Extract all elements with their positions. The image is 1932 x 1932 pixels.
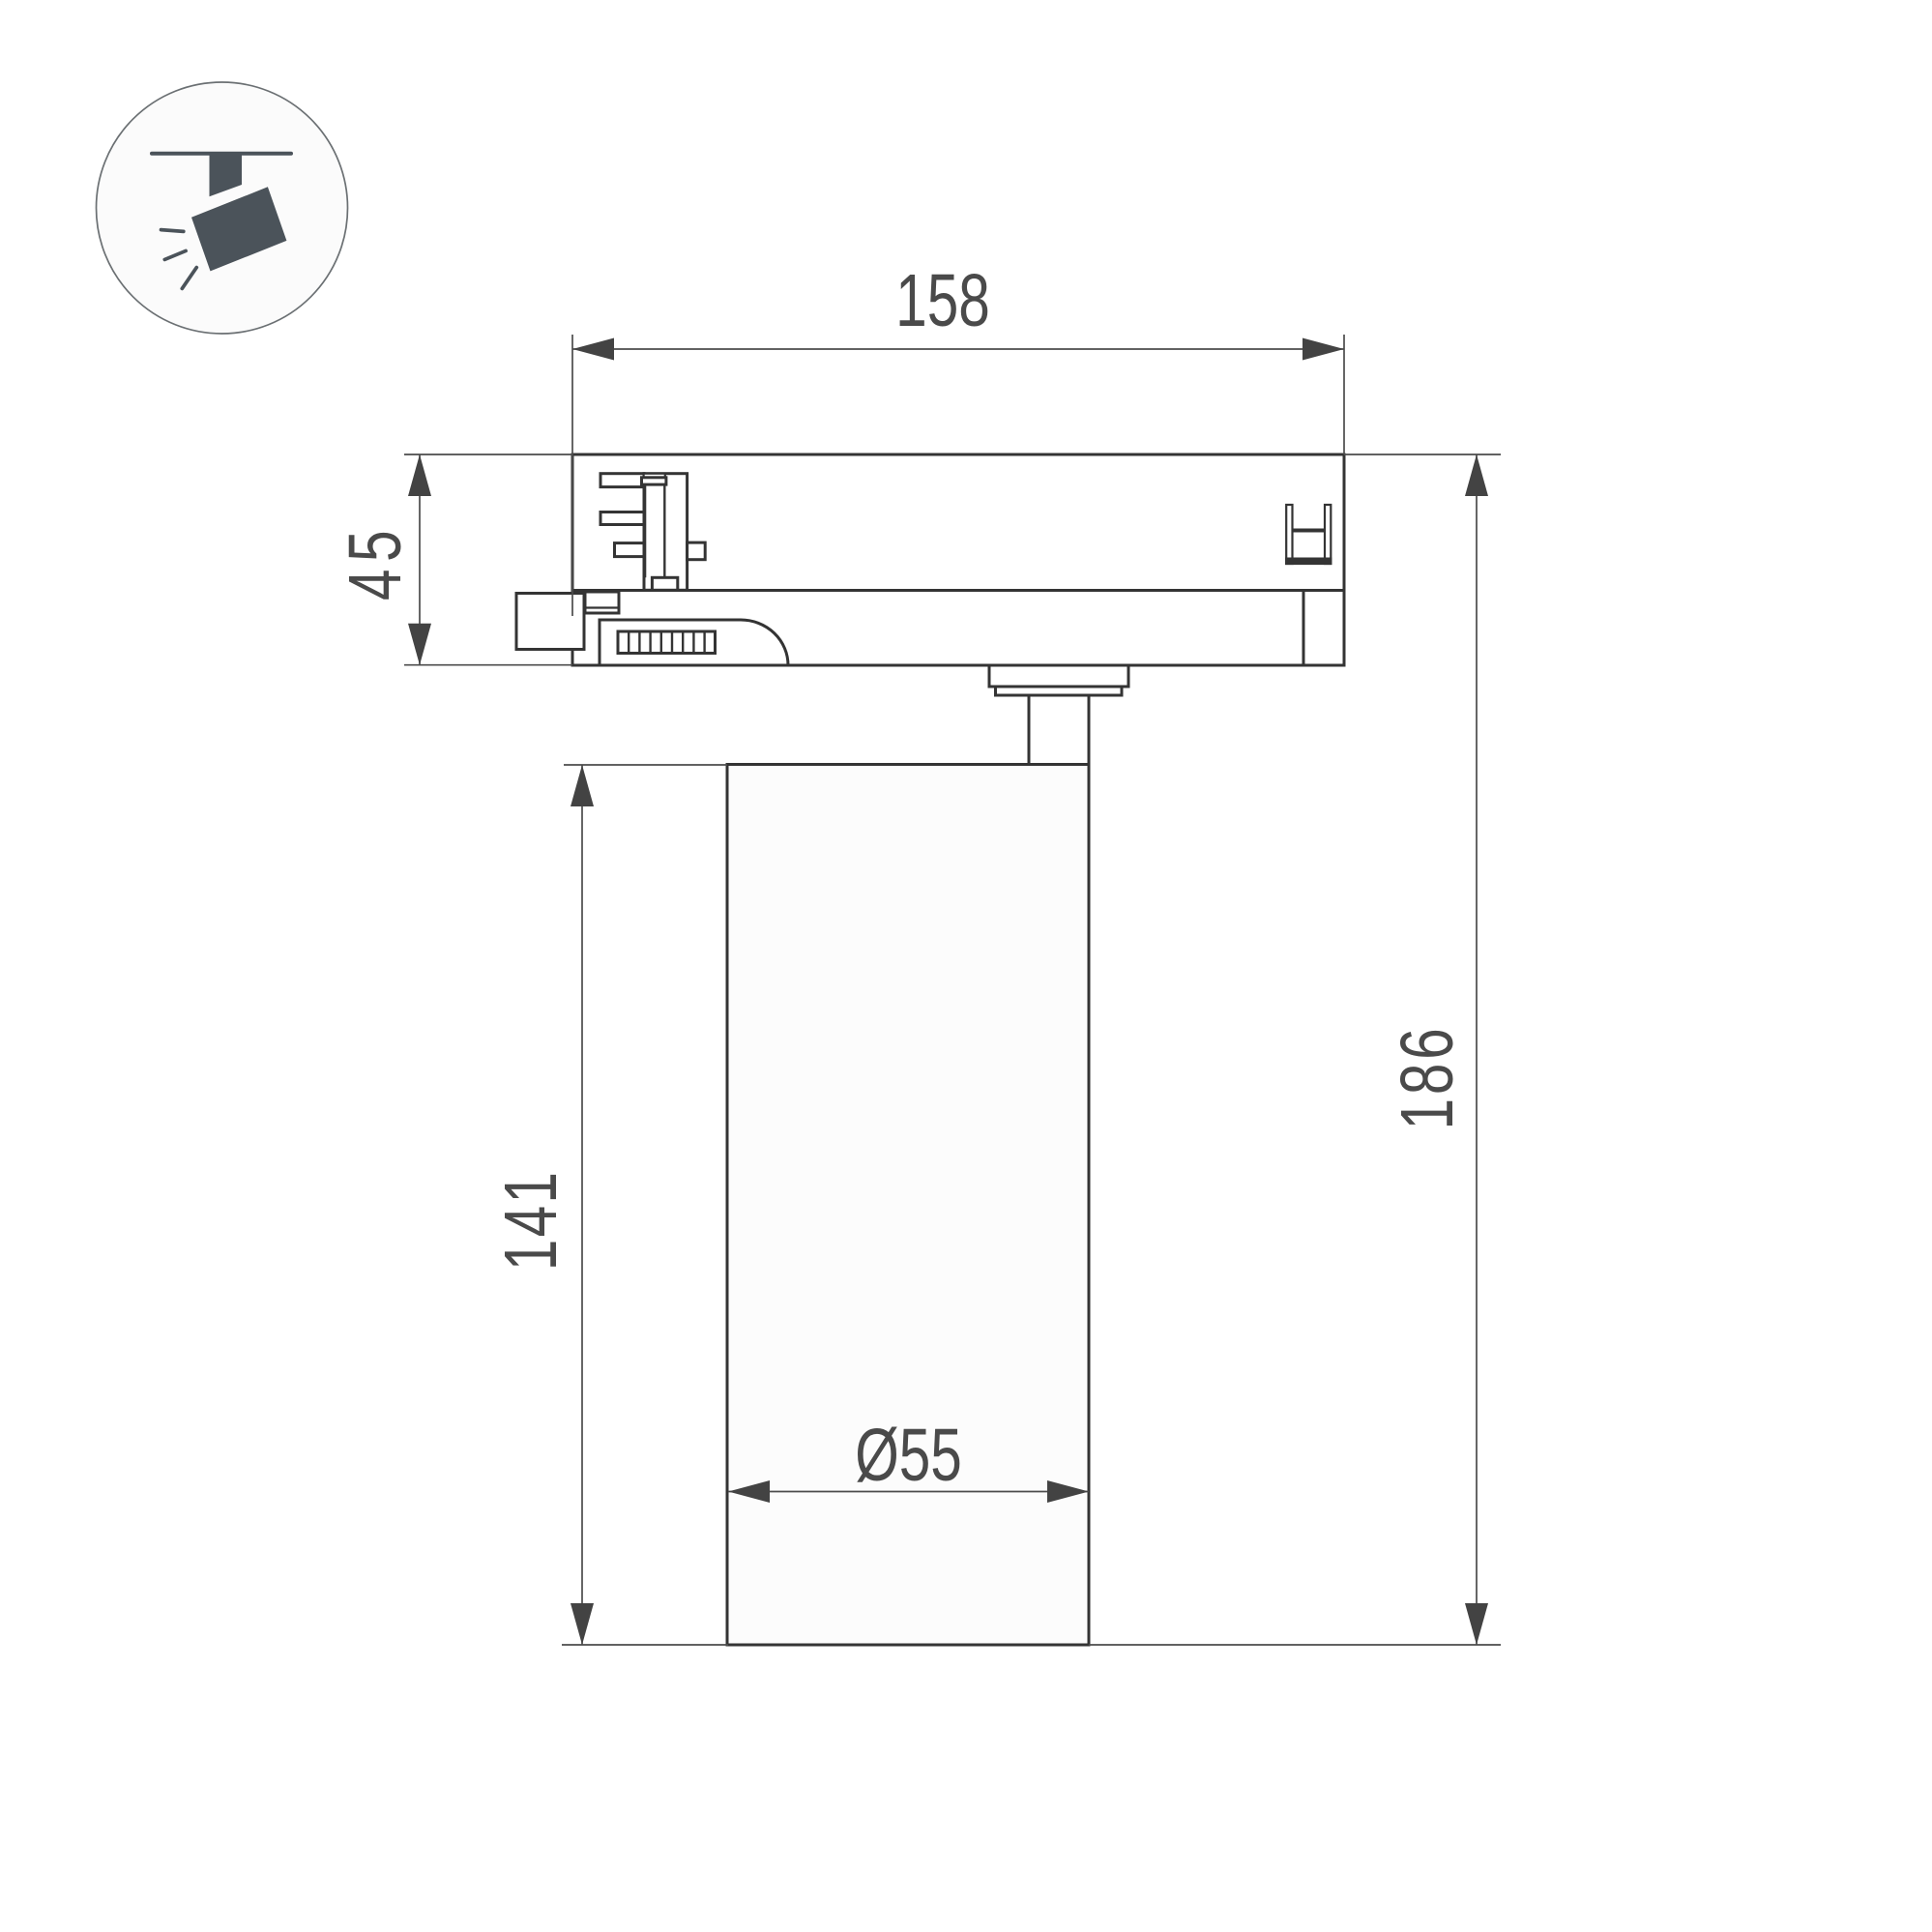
svg-text:186: 186 (1386, 1024, 1469, 1129)
svg-text:45: 45 (334, 523, 417, 600)
svg-text:Ø55: Ø55 (855, 1414, 962, 1497)
svg-text:141: 141 (489, 1170, 572, 1271)
svg-text:158: 158 (895, 259, 990, 342)
